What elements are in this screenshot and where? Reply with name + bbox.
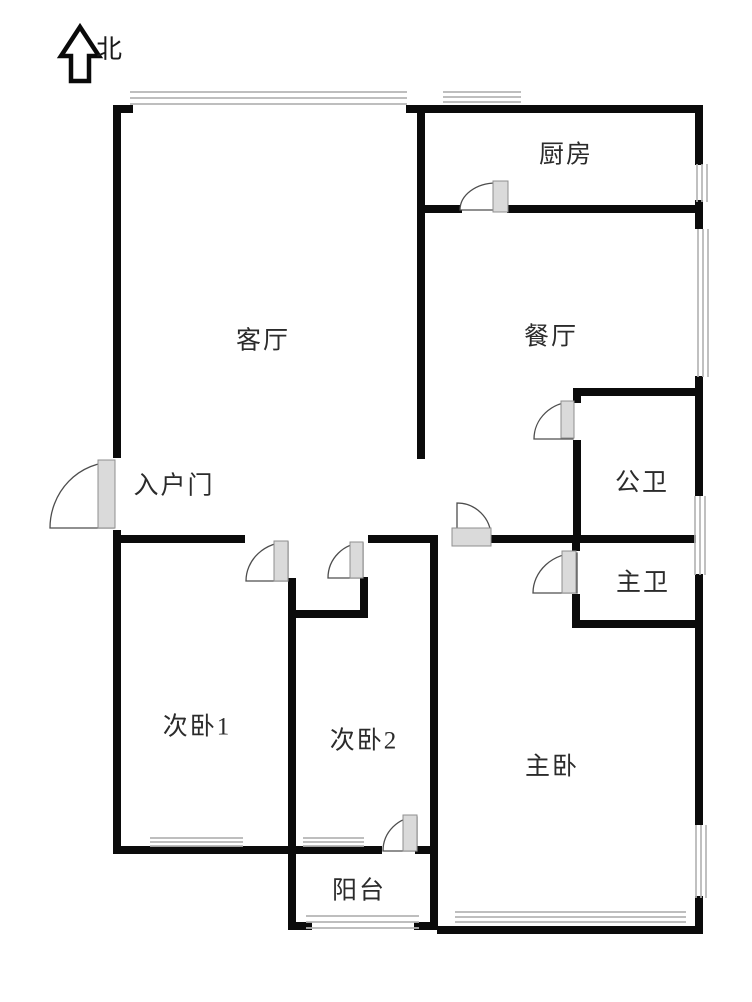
wall-segment xyxy=(113,530,121,854)
kitchen-door-swing-arc xyxy=(460,183,496,210)
wall-segment xyxy=(695,200,703,229)
wall-segment xyxy=(417,112,425,459)
room-label-dining-room: 餐厅 xyxy=(524,325,578,350)
wall-segment xyxy=(113,105,121,458)
wall-segment xyxy=(113,105,133,113)
master-bedroom-door-leaf xyxy=(452,528,491,546)
balcony-door-leaf xyxy=(403,815,417,851)
walls-layer xyxy=(113,105,703,934)
wall-segment xyxy=(695,574,703,825)
wall-segment xyxy=(573,440,581,541)
wall-segment xyxy=(695,105,703,165)
wall-segment xyxy=(437,926,702,934)
room-label-master-bedroom: 主卧 xyxy=(525,755,579,780)
room-label-living-room: 客厅 xyxy=(236,329,290,354)
wall-segment xyxy=(360,577,368,618)
doors-layer xyxy=(50,181,577,851)
hall-closet-door-leaf xyxy=(350,542,363,578)
room-label-balcony: 阳台 xyxy=(332,879,386,904)
wall-segment xyxy=(507,205,702,213)
room-label-guest-bathroom: 公卫 xyxy=(615,471,669,496)
room-label-bedroom-1: 次卧1 xyxy=(163,715,232,740)
kitchen-door-leaf xyxy=(493,181,508,212)
wall-segment xyxy=(368,535,438,543)
compass-north-label: 北 xyxy=(96,37,122,63)
wall-segment xyxy=(430,537,438,929)
wall-segment xyxy=(572,620,702,628)
entry-door-leaf xyxy=(98,460,115,528)
room-label-bedroom-2: 次卧2 xyxy=(330,729,399,754)
wall-segment xyxy=(115,846,382,854)
bedroom-1-door-leaf xyxy=(274,541,288,581)
wall-segment xyxy=(288,578,296,929)
north-arrow-icon xyxy=(61,27,99,81)
room-label-master-bathroom: 主卫 xyxy=(616,571,670,596)
wall-segment xyxy=(490,535,696,543)
room-label-kitchen: 厨房 xyxy=(539,143,593,168)
wall-segment xyxy=(288,610,368,618)
wall-segment xyxy=(573,388,702,396)
floor-plan: 北 客厅 厨房 餐厅 公卫 入户门 主卫 次卧1 次卧2 主卧 阳台 xyxy=(0,0,752,1002)
wall-segment xyxy=(115,535,245,543)
room-label-entry-door: 入户门 xyxy=(133,474,214,499)
wall-segment xyxy=(417,105,702,113)
wall-segment xyxy=(572,537,580,551)
floor-plan-drawing xyxy=(0,0,752,1002)
master-bathroom-door-leaf xyxy=(562,551,576,593)
guest-bathroom-door-leaf xyxy=(561,401,574,438)
